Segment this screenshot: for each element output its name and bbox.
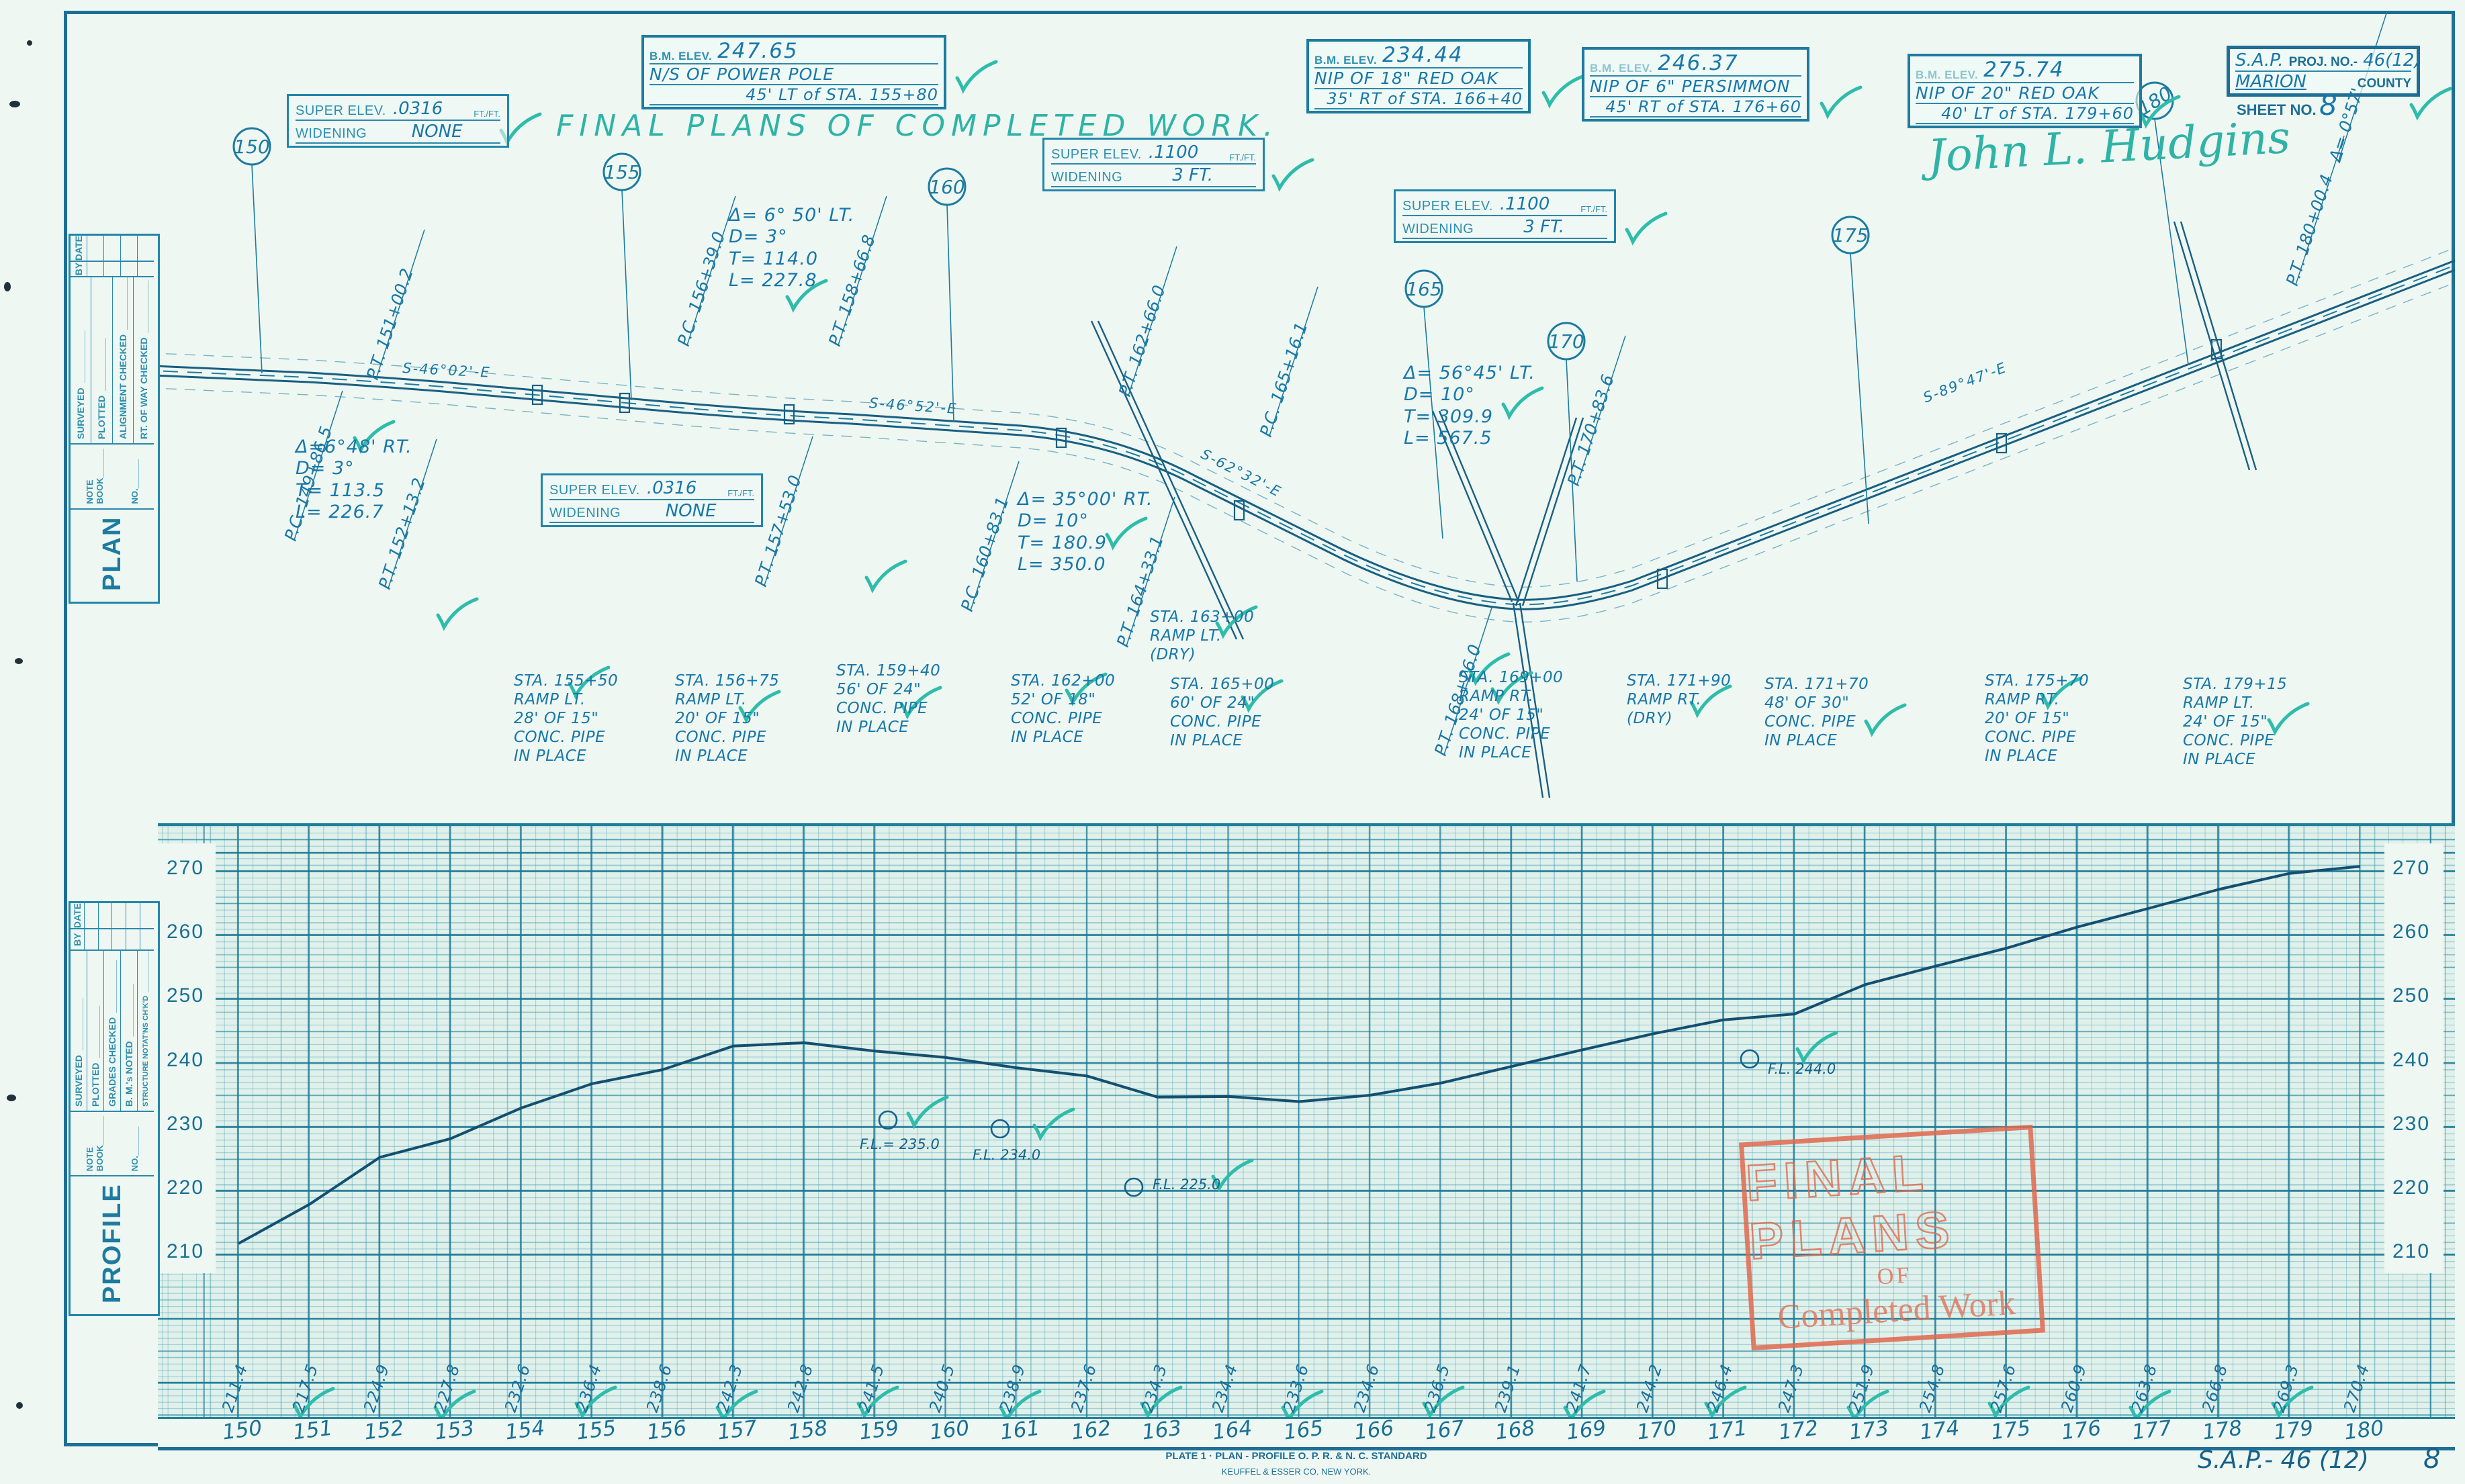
profile-record-block-rows: SURVEYED __________PLOTTED __________GRA… [71,949,154,1111]
station-number: 160 [928,1416,971,1445]
flowline-label: F.L. 225.0 [1153,1176,1220,1193]
plan-record-block-row: ALIGNMENT CHECKED __________ [113,277,134,443]
profile-record-block: PROFILENOTE BOOK______NO.______SURVEYED … [69,901,160,1316]
station-number: 177 [2131,1416,2173,1445]
pipe-callout: STA. 162+00 52' OF 18" CONC. PIPE IN PLA… [1011,671,1115,747]
station-number: 159 [858,1416,900,1445]
profile-record-block-cell [85,929,99,949]
widening-value: 3 FT. [1172,165,1213,185]
profile-record-block-cell [99,929,113,949]
plan-record-block-cell [87,262,104,276]
curve-data-note: Δ= 6° 50' LT. D= 3° T= 114.0 L= 227.8 [729,205,854,292]
superelev-box: SUPER ELEV..1100FT./FT.WIDENING3 FT. [1042,138,1265,191]
bm-elev-row: B.M. ELEV.247.65 [649,39,938,64]
pipe-callout: STA. 175+70 RAMP RT. 20' OF 15" CONC. PI… [1985,671,2089,766]
widening-row: WIDENING3 FT. [1402,216,1607,239]
elevation-label-right: 250 [2392,984,2430,1007]
bm-description: NIP OF 20" RED OAK [1916,83,2134,104]
profile-record-block-title: PROFILE [71,1175,154,1310]
project-number-row: S.A.P. PROJ. NO.- 46(12) [2235,50,2411,72]
station-number: 166 [1353,1416,1395,1445]
plan-record-block-cell [104,262,121,276]
superelev-box: SUPER ELEV..1100FT./FT.WIDENING3 FT. [1394,189,1616,243]
flowline-label: F.L.= 235.0 [860,1136,940,1152]
superelev-label: SUPER ELEV. [296,103,386,119]
superelev-label: SUPER ELEV. [1402,199,1493,214]
elevation-label-right: 270 [2392,857,2430,880]
plan-record-block-content: PLANNOTE BOOK______NO.______SURVEYED ___… [71,236,154,598]
station-number: 172 [1777,1416,1820,1445]
elevation-label-left: 260 [167,921,204,943]
station-number: 170 [1635,1416,1678,1445]
proj-no-label: PROJ. NO.- [2289,55,2358,70]
elevation-label-right: 230 [2392,1113,2430,1135]
bm-box: B.M. ELEV.246.37NIP OF 6" PERSIMMON45' R… [1582,47,1809,122]
stamp-line2: OF [1877,1262,1913,1290]
bm-elev-value: 275.74 [1983,58,2064,82]
plan-record-block-notebook: NOTE BOOK______NO.______ [71,443,154,508]
photo-artifact [7,1095,16,1101]
pipe-callout: STA. 163+00 RAMP LT. (DRY) [1150,608,1254,664]
station-number: 150 [221,1416,263,1445]
superelev-unit: FT./FT. [727,488,754,498]
sheet-no-value: 8 [2319,89,2337,122]
final-plans-stamp: FINAL PLANS OF Completed Work [1739,1125,2045,1350]
photo-artifact [4,282,11,291]
pipe-callout: STA. 171+70 48' OF 30" CONC. PIPE IN PLA… [1764,675,1869,750]
elevation-label-right: 210 [2392,1240,2430,1263]
plan-record-block-row: SURVEYED __________ [71,277,91,443]
superelev-label: SUPER ELEV. [549,483,640,498]
county-label: COUNTY [2358,77,2411,91]
bm-location: 45' RT of STA. 176+60 [1590,97,1801,118]
widening-label: WIDENING [549,506,621,521]
plan-record-block-colhead: DATE [71,236,87,261]
station-number: 163 [1140,1416,1183,1445]
superelev-label: SUPER ELEV. [1051,147,1142,163]
station-number: 153 [433,1416,476,1445]
station-number: 173 [1848,1416,1890,1445]
station-number: 161 [999,1416,1041,1445]
profile-record-block-cell [85,903,99,928]
elevation-label-left: 220 [167,1176,204,1199]
bm-location: 35' RT of STA. 166+40 [1314,89,1523,109]
widening-label: WIDENING [1051,170,1122,185]
elevation-label-left: 230 [167,1113,204,1135]
bm-description: N/S OF POWER POLE [649,64,938,85]
profile-record-block-row: PLOTTED __________ [87,951,104,1111]
station-number: 164 [1211,1416,1253,1445]
pipe-callout: STA. 179+15 RAMP LT. 24' OF 15" CONC. PI… [2183,675,2287,769]
station-number: 162 [1070,1416,1112,1445]
plan-record-block-cell [138,262,154,276]
profile-record-block-notebook: NOTE BOOK______NO.______ [71,1111,154,1175]
sap-prefix: S.A.P. [2235,50,2284,71]
bm-box: B.M. ELEV.234.44NIP OF 18" RED OAK35' RT… [1306,39,1531,113]
elevation-label-left: 250 [167,984,204,1007]
plan-record-block-row: PLOTTED __________ [91,277,112,443]
plate-maker: KEUFFEL & ESSER CO. NEW YORK. [1055,1467,1538,1477]
photo-artifact [9,101,20,107]
station-number: 178 [2201,1416,2243,1445]
bm-elev-label: B.M. ELEV. [649,50,712,63]
profile-record-block-cell [140,929,154,949]
superelev-box: SUPER ELEV..0316FT./FT.WIDENINGNONE [287,94,509,148]
station-number: 167 [1423,1416,1466,1445]
superelev-row: SUPER ELEV..1100FT./FT. [1402,193,1607,216]
superelev-row: SUPER ELEV..0316FT./FT. [296,98,500,121]
profile-record-block-colhead: BY [71,929,85,949]
bm-elev-value: 234.44 [1382,43,1463,67]
plate-title: PLATE 1 · PLAN - PROFILE O. P. R. & N. C… [1055,1450,1538,1462]
station-number: 154 [504,1416,546,1445]
bm-elev-value: 246.37 [1658,51,1738,75]
widening-label: WIDENING [1402,222,1474,237]
bm-description: NIP OF 18" RED OAK [1314,68,1523,89]
station-number: 165 [1282,1416,1325,1445]
pipe-callout: STA. 159+40 56' OF 24" CONC. PIPE IN PLA… [836,661,940,737]
elevation-label-left: 210 [167,1240,204,1263]
superelev-row: SUPER ELEV..0316FT./FT. [549,477,754,500]
elevation-label-right: 240 [2392,1049,2430,1072]
photo-artifact [27,40,32,46]
superelev-value: .1100 [1149,142,1198,163]
bm-elev-label: B.M. ELEV. [1916,68,1978,82]
photo-artifact [15,658,23,664]
elevation-label-left: 240 [167,1049,204,1072]
superelev-unit: FT./FT. [1580,204,1607,214]
flowline-label: F.L. 244.0 [1768,1061,1836,1077]
profile-record-block-row: SURVEYED __________ [71,951,87,1111]
plan-record-block-col-by: BY [71,261,154,276]
widening-row: WIDENING3 FT. [1051,165,1256,187]
stamp-line1: FINAL PLANS [1744,1137,2036,1271]
main-title: FINAL PLANS OF COMPLETED WORK. [556,109,1279,143]
curve-data-note: Δ= 56°45' LT. D= 10° T= 309.9 L= 567.5 [1404,363,1535,450]
widening-value: NONE [666,501,717,521]
profile-record-block-cell [112,903,126,928]
station-number: 152 [363,1416,405,1445]
profile-record-block-col-date: DATE [71,903,154,928]
curve-data-note: Δ= 35°00' RT. D= 10° T= 180.9 L= 350.0 [1018,489,1153,576]
profile-grid [158,823,2455,1420]
pipe-callout: STA. 155+50 RAMP LT. 28' OF 15" CONC. PI… [514,671,618,766]
station-number: 168 [1494,1416,1536,1445]
superelev-unit: FT./FT. [1229,152,1256,163]
superelev-value: .0316 [393,99,443,119]
plan-record-block-cell [121,236,138,261]
profile-record-block-col-by: BY [71,928,154,949]
widening-row: WIDENINGNONE [296,121,500,144]
station-number: 169 [1565,1416,1607,1445]
bm-elev-row: B.M. ELEV.275.74 [1916,58,2134,83]
plan-record-block-cell [138,236,154,261]
bm-elev-row: B.M. ELEV.246.37 [1590,51,1801,77]
profile-record-block-cell [126,929,140,949]
plan-profile-sheet: 150155160165170175180 FINAL PLANS OF COM… [0,0,2465,1484]
footer-page-number: 8 [2423,1444,2440,1475]
plan-record-block-cell [87,236,104,261]
photo-artifact [16,1402,23,1409]
plan-record-block-row: RT. OF WAY CHECKED __________ [134,277,154,443]
flowline-label: F.L. 234.0 [973,1147,1040,1163]
elevation-label-left: 270 [167,857,204,880]
station-number: 151 [292,1416,334,1445]
profile-record-block-content: PROFILENOTE BOOK______NO.______SURVEYED … [71,903,154,1310]
station-number: 156 [645,1416,688,1445]
widening-value: NONE [412,122,463,142]
pipe-callout: STA. 165+00 60' OF 24" CONC. PIPE IN PLA… [1170,675,1274,750]
superelev-value: .0316 [647,478,697,498]
bm-elev-value: 247.65 [717,39,798,63]
bm-box: B.M. ELEV.275.74NIP OF 20" RED OAK40' LT… [1908,54,2142,128]
profile-record-block-cell [112,929,126,949]
profile-record-block-row: GRADES CHECKED __________ [104,951,121,1111]
station-number: 171 [1706,1416,1748,1445]
plan-record-block-colhead: BY [71,262,87,276]
plan-record-block-rows: SURVEYED __________PLOTTED __________ALI… [71,276,154,443]
plan-record-block-title: PLAN [71,508,154,598]
superelev-unit: FT./FT. [474,109,500,119]
station-number: 180 [2343,1416,2385,1445]
superelev-row: SUPER ELEV..1100FT./FT. [1051,142,1256,165]
proj-no-value: 46(12) [2363,50,2421,71]
pipe-callout: STA. 171+90 RAMP RT. (DRY) [1627,671,1731,728]
widening-row: WIDENINGNONE [549,500,754,523]
station-number: 174 [1918,1416,1961,1445]
superelev-box: SUPER ELEV..0316FT./FT.WIDENINGNONE [541,473,763,527]
plan-record-block-col-date: DATE [71,236,154,261]
plan-record-block-cell [104,236,121,261]
widening-value: 3 FT. [1523,217,1564,237]
bm-box: B.M. ELEV.247.65N/S OF POWER POLE45' LT … [641,35,946,109]
elevation-label-right: 220 [2392,1176,2430,1199]
station-number: 175 [1989,1416,2032,1445]
elevation-label-right: 260 [2392,921,2430,943]
bm-elev-row: B.M. ELEV.234.44 [1314,43,1523,68]
superelev-value: .1100 [1500,194,1550,214]
bm-elev-label: B.M. ELEV. [1314,54,1377,67]
station-number: 176 [2060,1416,2102,1445]
stamp-line3: Completed Work [1777,1283,2016,1338]
pipe-callout: STA. 156+75 RAMP LT. 20' OF 15" CONC. PI… [675,671,779,766]
station-number: 179 [2272,1416,2315,1445]
profile-record-block-row: B. M.'s NOTED __________ [121,951,138,1111]
pipe-callout: STA. 169+00 RAMP RT. 24' OF 15" CONC. PI… [1459,668,1563,762]
bm-elev-label: B.M. ELEV. [1590,62,1652,75]
profile-record-block-colhead: DATE [71,903,85,928]
profile-record-block-cell [99,903,113,928]
bm-description: NIP OF 6" PERSIMMON [1590,77,1801,97]
bm-location: 45' LT of STA. 155+80 [649,85,938,105]
plan-record-block-cell [121,262,138,276]
station-number: 157 [716,1416,758,1445]
plan-record-block: PLANNOTE BOOK______NO.______SURVEYED ___… [69,234,160,604]
widening-label: WIDENING [296,126,367,142]
station-number: 158 [787,1416,829,1445]
profile-record-block-cell [140,903,154,928]
profile-record-block-row: STRUCTURE NOTAT'NS CH'K'D __________ [138,951,154,1111]
station-number: 155 [575,1416,617,1445]
footer-project-number: S.A.P.- 46 (12) [2198,1446,2369,1474]
profile-record-block-cell [126,903,140,928]
